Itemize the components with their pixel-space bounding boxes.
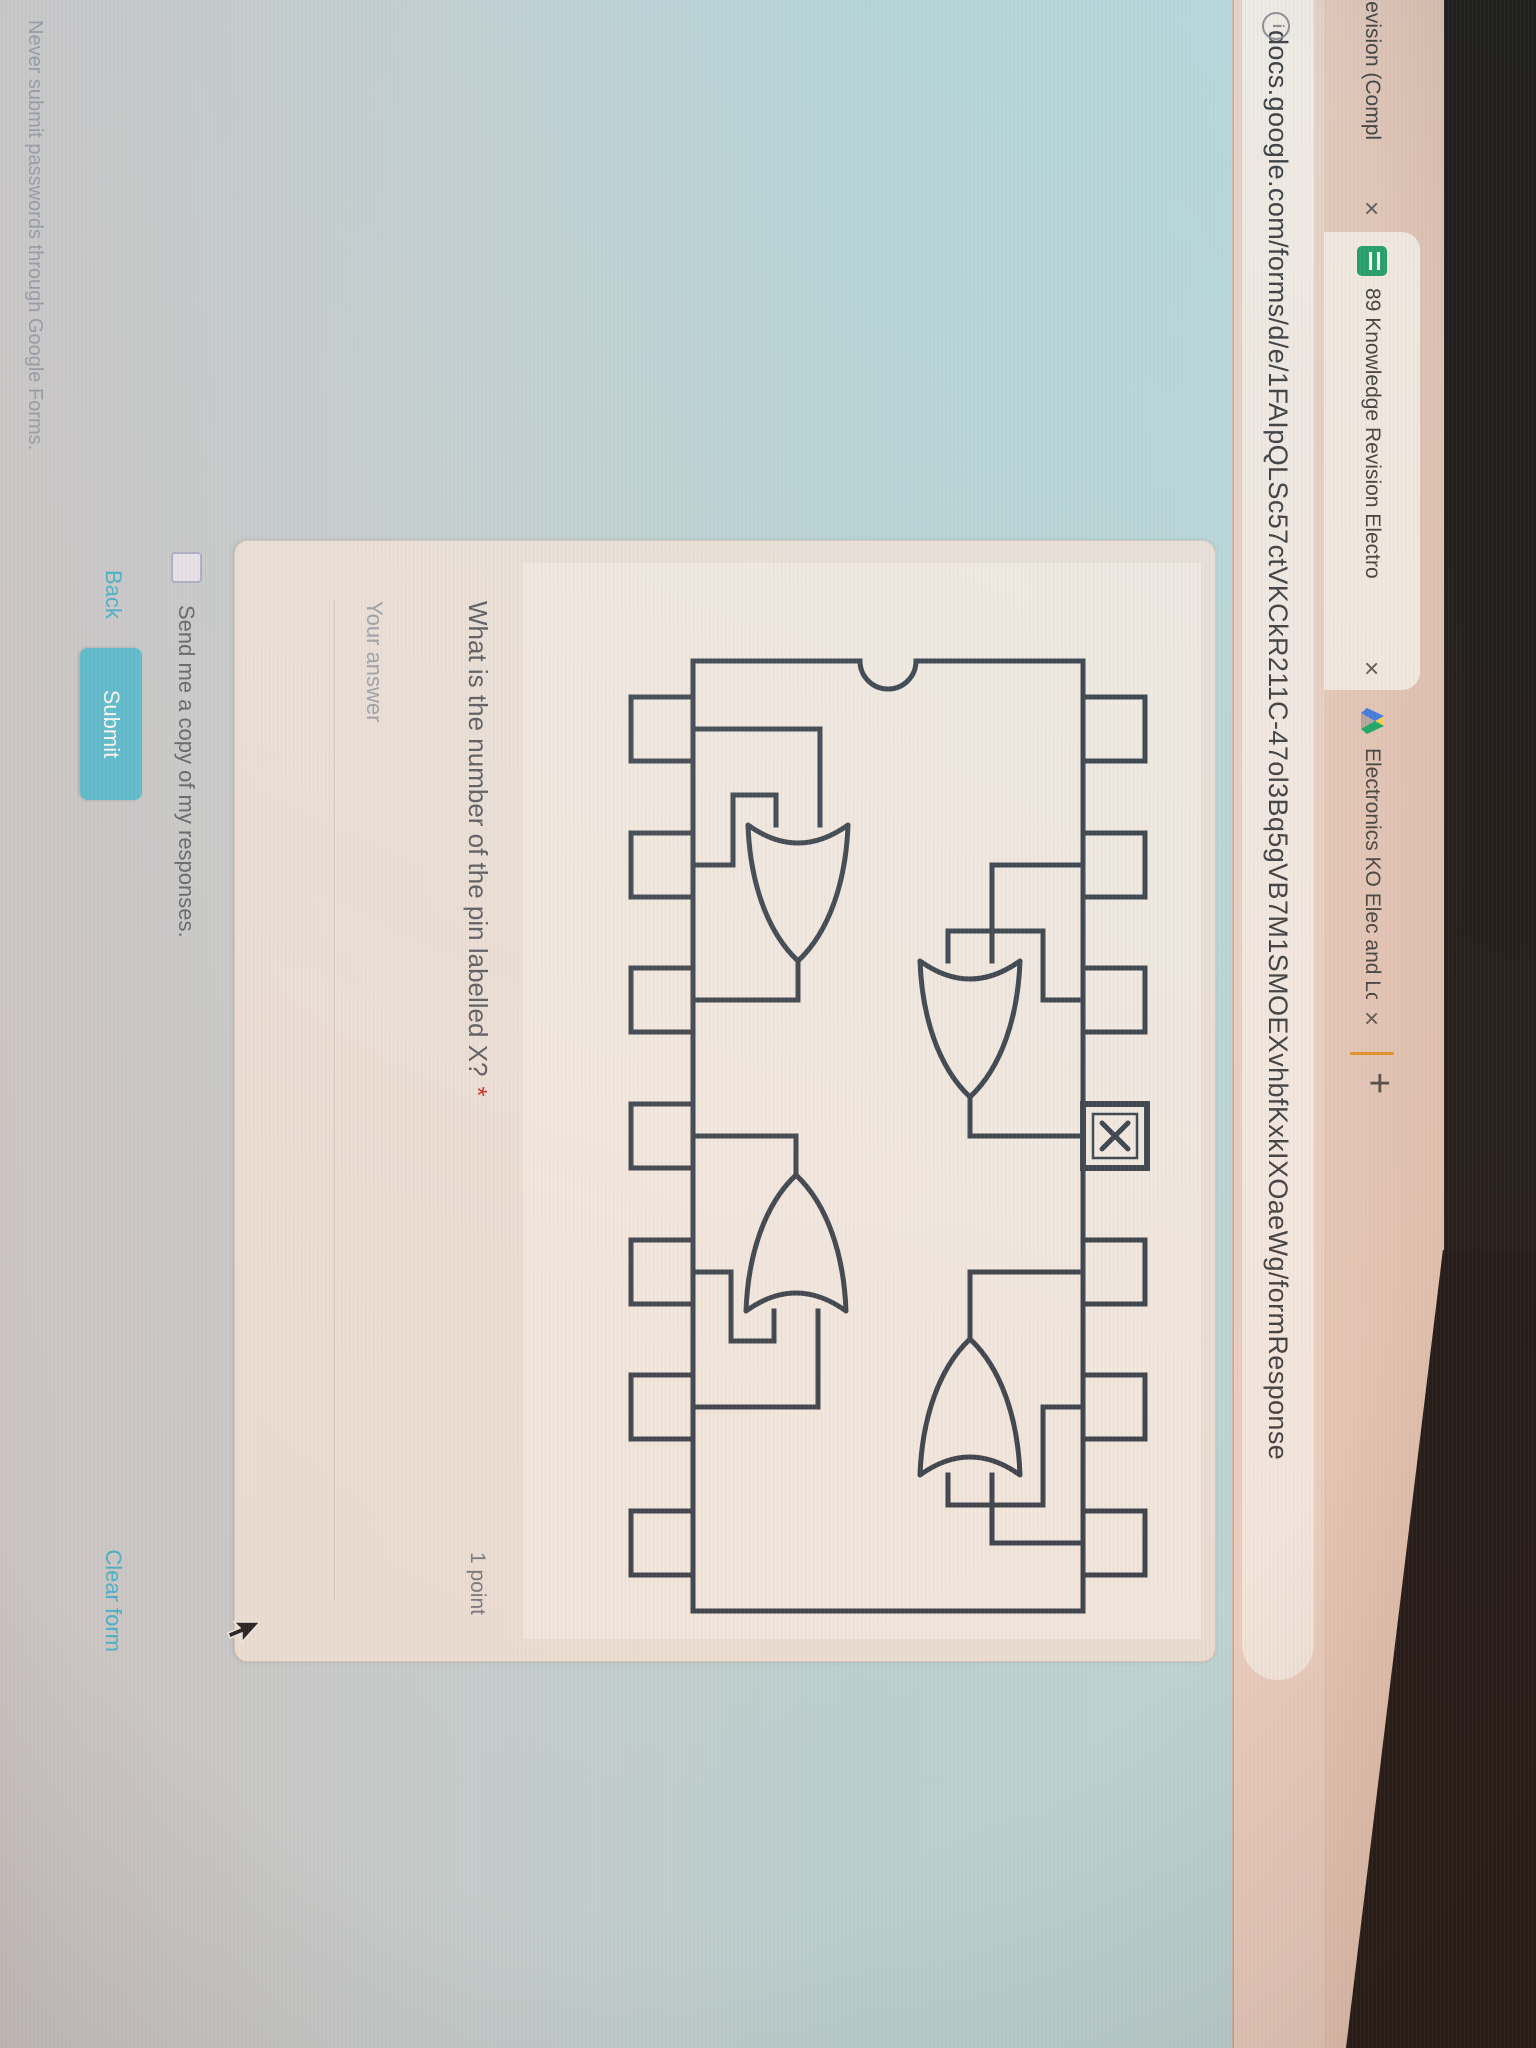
browser-toolbar: i docs.google.com/forms/d/e/1FAIpQLSc57c… [1232,0,1324,2048]
back-button[interactable]: Back [100,570,126,619]
tab-group-divider [1350,1052,1394,1055]
pin-7 [631,1511,693,1575]
or-gate-4 [920,1339,1020,1475]
tab-close-icon[interactable]: × [1357,201,1388,216]
address-bar[interactable]: i docs.google.com/forms/d/e/1FAIpQLSc57c… [1242,0,1314,1680]
short-answer-field[interactable]: Your answer [334,601,387,1601]
question-title-row: What is the number of the pin labelled X… [462,601,493,1615]
pin-2 [631,833,693,897]
submit-button[interactable]: Submit [80,648,142,800]
ic-pinout-diagram: X [523,563,1201,1639]
question-card: X What is the number of the pin labelled… [234,540,1216,1662]
tab-label: 89 Knowledge Revision Electro [1360,288,1384,649]
wire-g2-pin4 [693,1136,796,1175]
drive-icon [1357,706,1387,736]
send-copy-row: Send me a copy of my responses. [171,552,202,938]
sheets-icon [1357,246,1387,276]
site-info-icon[interactable]: i [1262,12,1290,40]
points-badge: 1 point [465,1552,489,1615]
required-asterisk: * [463,1087,493,1097]
pin-9 [1083,1375,1145,1439]
pin-6 [631,1375,693,1439]
wire-g1-pin3 [693,961,798,1000]
answer-underline [334,601,335,1601]
tab-electronics-ko[interactable]: Electronics KO Elec and Logic.p × [1324,692,1420,1040]
clear-form-button[interactable]: Clear form [100,1549,126,1652]
wire-g3-pinX [970,1097,1083,1136]
tab-label: Revision (Compl [1360,0,1384,189]
question-title: What is the number of the pin labelled X… [463,601,493,1077]
send-copy-checkbox[interactable] [171,552,202,583]
pin-13 [1083,833,1145,897]
wire-pin1-g1 [693,729,820,825]
answer-placeholder: Your answer [361,601,387,1601]
or-gate-1 [748,825,848,961]
url-text[interactable]: docs.google.com/forms/d/e/1FAIpQLSc57ctV… [1263,30,1294,1460]
tab-close-icon[interactable]: × [1357,1011,1388,1026]
pin-3 [631,968,693,1032]
pin-10 [1083,1240,1145,1304]
or-gate-2 [746,1175,846,1311]
question-image: X [523,563,1201,1639]
tab-label: Electronics KO Elec and Logic.p [1360,748,1384,999]
form-actions-row: Back Submit Clear form [72,540,142,1660]
pin-14 [1083,697,1145,761]
pin-8 [1083,1511,1145,1575]
tab-close-icon[interactable]: × [1357,661,1388,676]
pin-1 [631,697,693,761]
mouse-cursor-icon [221,1620,260,1650]
google-form-page: X What is the number of the pin labelled… [0,0,1232,2048]
wire-g4-pin10 [970,1272,1083,1339]
pin-12 [1083,968,1145,1032]
photographed-monitor: Revision (Compl × 89 Knowledge Revision … [0,0,1536,2048]
pin-5 [631,1240,693,1304]
pin-4 [631,1104,693,1168]
tab-revision[interactable]: Revision (Compl × [1324,0,1420,230]
notch-mask [862,656,914,666]
send-copy-label: Send me a copy of my responses. [174,605,200,938]
or-gate-3 [920,961,1020,1097]
rotated-screen-content: Revision (Compl × 89 Knowledge Revision … [0,0,1536,2048]
wire-pin8-g4 [992,1475,1083,1543]
wire-pin13-g3 [992,865,1083,961]
form-footer-warning: Never submit passwords through Google Fo… [23,20,46,450]
wire-pin6-g2 [693,1311,818,1407]
tab-knowledge-revision[interactable]: 89 Knowledge Revision Electro × [1324,232,1420,690]
new-tab-button[interactable]: + [1357,1072,1400,1094]
